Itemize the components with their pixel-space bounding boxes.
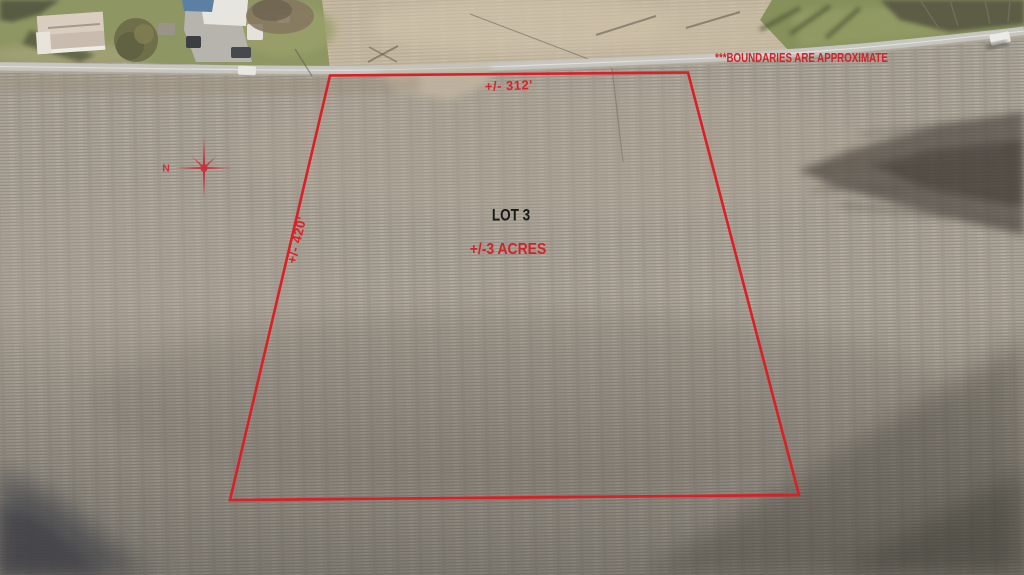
svg-text:N: N bbox=[162, 163, 170, 175]
svg-text:+/- 312': +/- 312' bbox=[485, 77, 533, 94]
svg-text:LOT 3: LOT 3 bbox=[492, 206, 530, 225]
svg-text:***BOUNDARIES ARE APPROXIMATE: ***BOUNDARIES ARE APPROXIMATE bbox=[715, 52, 888, 65]
svg-text:+/-3 ACRES: +/-3 ACRES bbox=[470, 241, 547, 258]
